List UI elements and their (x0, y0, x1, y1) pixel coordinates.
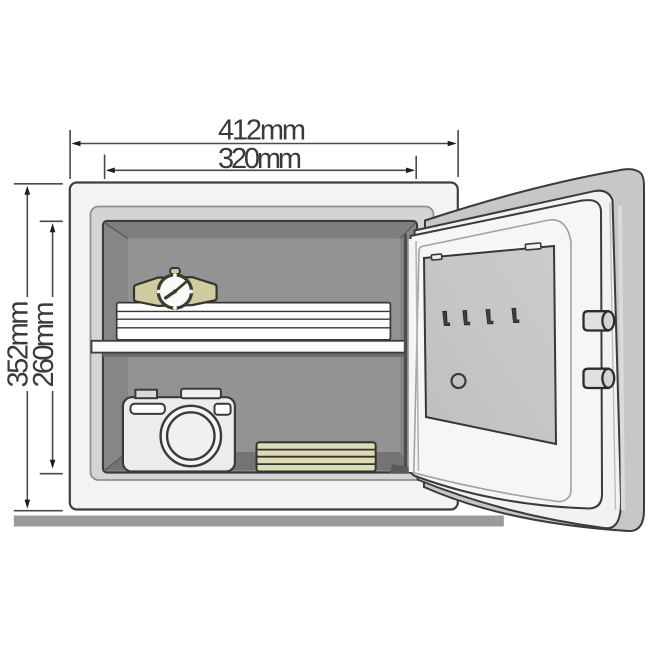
svg-text:260mm: 260mm (28, 302, 60, 388)
svg-text:320mm: 320mm (218, 143, 302, 175)
svg-text:412mm: 412mm (218, 115, 306, 147)
